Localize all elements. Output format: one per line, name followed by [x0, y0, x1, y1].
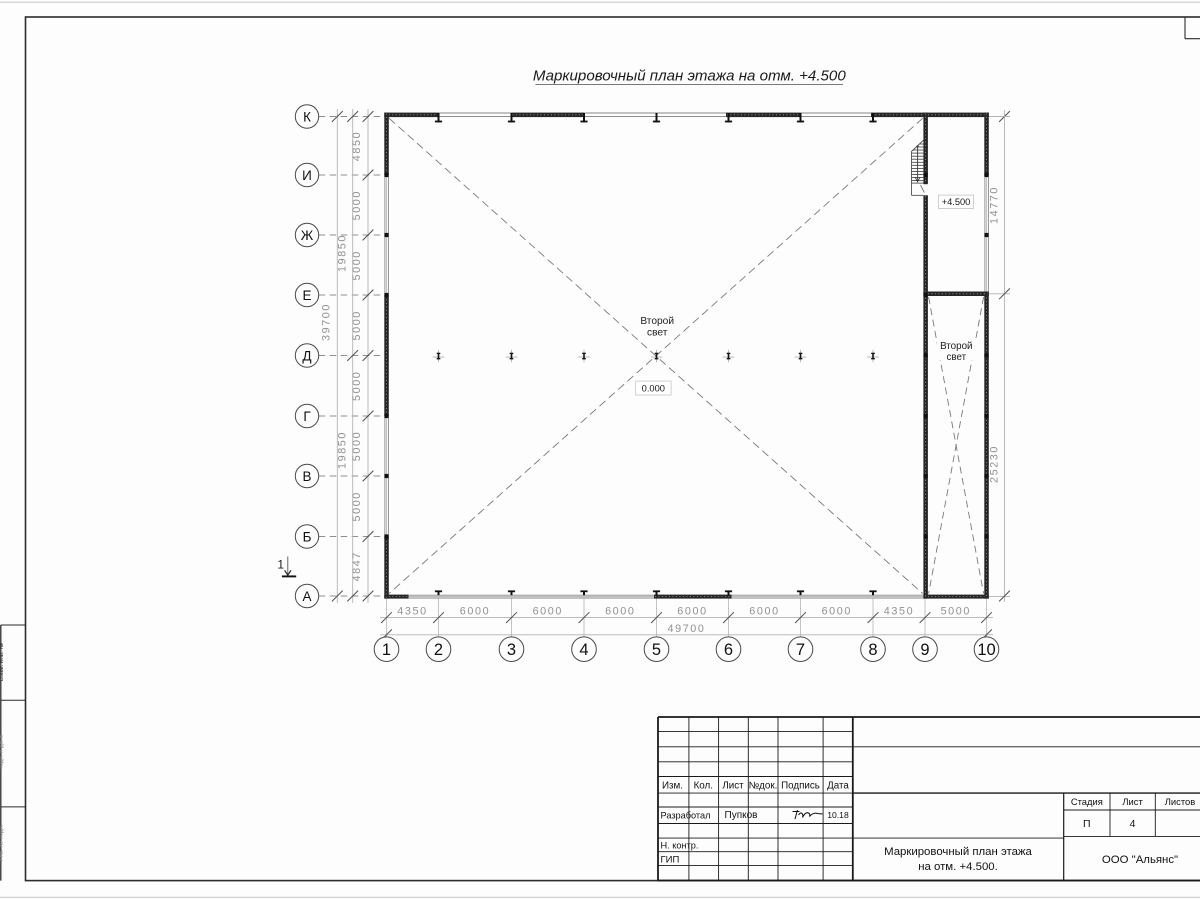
svg-text:4: 4: [1130, 818, 1136, 830]
svg-text:6000: 6000: [749, 606, 779, 618]
svg-text:Стадия: Стадия: [1071, 796, 1103, 807]
svg-text:Взам. инв. №: Взам. инв. №: [0, 642, 5, 681]
svg-text:19850: 19850: [336, 234, 348, 272]
svg-text:В: В: [302, 469, 311, 484]
svg-text:0.000: 0.000: [642, 384, 665, 394]
svg-text:№док.: №док.: [749, 780, 778, 791]
svg-text:6000: 6000: [460, 606, 490, 618]
svg-text:Второй: Второй: [640, 316, 674, 327]
svg-text:5000: 5000: [351, 250, 363, 280]
svg-text:Изм.: Изм.: [662, 780, 683, 791]
svg-text:5000: 5000: [351, 431, 363, 461]
svg-text:+4.500: +4.500: [942, 197, 971, 207]
svg-text:Разработал: Разработал: [661, 810, 711, 820]
svg-text:К: К: [303, 109, 311, 124]
svg-text:2: 2: [434, 641, 443, 659]
svg-text:39700: 39700: [320, 303, 332, 341]
svg-text:9: 9: [920, 641, 929, 659]
svg-text:6000: 6000: [677, 606, 707, 618]
svg-text:Инв. № подл.: Инв. № подл.: [0, 824, 5, 862]
svg-text:4: 4: [579, 641, 588, 659]
svg-text:25230: 25230: [988, 445, 1000, 483]
svg-text:Д: Д: [302, 348, 311, 363]
svg-text:10: 10: [977, 641, 995, 659]
svg-text:5000: 5000: [351, 371, 363, 401]
svg-text:5000: 5000: [351, 190, 363, 220]
svg-text:И: И: [302, 168, 312, 183]
svg-text:Е: Е: [302, 288, 311, 303]
svg-text:4847: 4847: [351, 551, 363, 581]
svg-text:7: 7: [796, 641, 805, 659]
svg-text:6000: 6000: [605, 606, 635, 618]
svg-text:П: П: [1083, 818, 1091, 830]
svg-text:Ж: Ж: [301, 228, 314, 243]
svg-text:8: 8: [868, 641, 877, 659]
svg-text:14770: 14770: [988, 186, 1000, 224]
svg-text:49700: 49700: [667, 623, 705, 635]
svg-text:5000: 5000: [351, 491, 363, 521]
svg-text:Подпись: Подпись: [781, 780, 820, 791]
svg-text:6: 6: [724, 641, 733, 659]
svg-text:Г: Г: [303, 409, 311, 424]
svg-text:свет: свет: [647, 328, 668, 339]
svg-text:4350: 4350: [397, 606, 427, 618]
svg-text:5000: 5000: [351, 310, 363, 340]
svg-text:ГИП: ГИП: [661, 855, 680, 866]
svg-text:19850: 19850: [336, 431, 348, 469]
svg-text:4850: 4850: [351, 131, 363, 161]
svg-text:свет: свет: [946, 352, 966, 363]
svg-text:Б: Б: [303, 529, 312, 544]
svg-text:Н. контр.: Н. контр.: [661, 841, 699, 851]
svg-text:1: 1: [277, 558, 284, 572]
svg-text:Второй: Второй: [940, 341, 972, 352]
svg-text:10.18: 10.18: [827, 810, 849, 820]
svg-text:3: 3: [507, 641, 516, 659]
svg-text:А: А: [302, 589, 311, 604]
svg-text:5000: 5000: [941, 606, 971, 618]
svg-text:Дата: Дата: [827, 780, 849, 791]
svg-text:Лист: Лист: [1122, 796, 1143, 807]
svg-text:4350: 4350: [884, 606, 914, 618]
svg-text:Подп. и дата: Подп. и дата: [0, 735, 5, 771]
svg-text:Кол.: Кол.: [694, 780, 713, 791]
svg-text:1: 1: [382, 641, 391, 659]
svg-text:Пупков: Пупков: [725, 810, 758, 821]
svg-text:ООО "Альянс": ООО "Альянс": [1102, 854, 1178, 866]
svg-text:Маркировочный план этажа на от: Маркировочный план этажа на отм. +4.500: [533, 67, 846, 84]
svg-text:6000: 6000: [533, 606, 563, 618]
svg-text:5: 5: [652, 641, 661, 659]
svg-text:6000: 6000: [822, 606, 852, 618]
svg-text:Лист: Лист: [722, 780, 744, 791]
svg-text:Листов: Листов: [1165, 796, 1195, 807]
svg-text:Маркировочный план этажа: Маркировочный план этажа: [884, 846, 1032, 858]
svg-text:на отм. +4.500.: на отм. +4.500.: [918, 861, 998, 873]
